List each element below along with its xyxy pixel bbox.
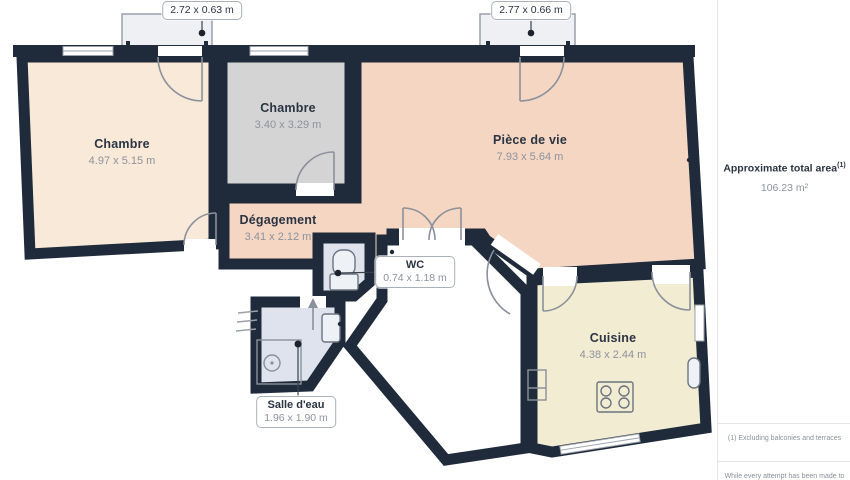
balcony-2-dims: 2.77 x 0.66 m	[499, 4, 563, 17]
kitchen-fixture	[688, 358, 700, 388]
footnote-exclusions-text: (1) Excluding balconies and terraces	[718, 435, 850, 442]
footnote-disclaimer-text: While every attempt has been made to	[718, 473, 850, 480]
room-chambre-mid	[222, 57, 350, 189]
room-name: WC	[383, 259, 447, 272]
top-wall	[13, 45, 695, 57]
window-cuisine-right	[695, 305, 704, 341]
floor-plan-page: 2.72 x 0.63 m 2.77 x 0.66 m Chambre 4.97…	[0, 0, 850, 480]
balcony-1-dims: 2.72 x 0.63 m	[170, 4, 234, 17]
room-cuisine	[532, 272, 706, 452]
window-chambre-left	[63, 47, 113, 56]
balcony-measurement-label-2: 2.77 x 0.66 m	[491, 1, 571, 20]
total-area-value: 106.23 m²	[718, 182, 850, 194]
room-dims: 0.74 x 1.18 m	[383, 272, 447, 285]
room-name: Salle d'eau	[264, 399, 328, 412]
salle-deau-callout: Salle d'eau 1.96 x 1.90 m	[256, 396, 336, 428]
footnote-exclusions: (1) Excluding balconies and terraces	[718, 423, 850, 442]
room-chambre-left	[22, 57, 214, 254]
bathroom-sink	[322, 314, 340, 342]
wc-callout: WC 0.74 x 1.18 m	[375, 256, 455, 288]
balcony-measurement-label-1: 2.72 x 0.63 m	[162, 1, 242, 20]
window-chambre-mid	[250, 47, 308, 56]
footnote-disclaimer: While every attempt has been made to	[718, 461, 850, 480]
room-dims: 1.96 x 1.90 m	[264, 412, 328, 425]
sidebar: Approximate total area(1) 106.23 m² (1) …	[717, 0, 850, 480]
total-area-title: Approximate total area(1)	[718, 162, 850, 175]
toilet	[330, 250, 358, 290]
total-area-block: Approximate total area(1) 106.23 m²	[718, 162, 850, 194]
total-area-footnote-marker: (1)	[837, 162, 846, 169]
total-area-title-text: Approximate total area	[723, 163, 837, 175]
